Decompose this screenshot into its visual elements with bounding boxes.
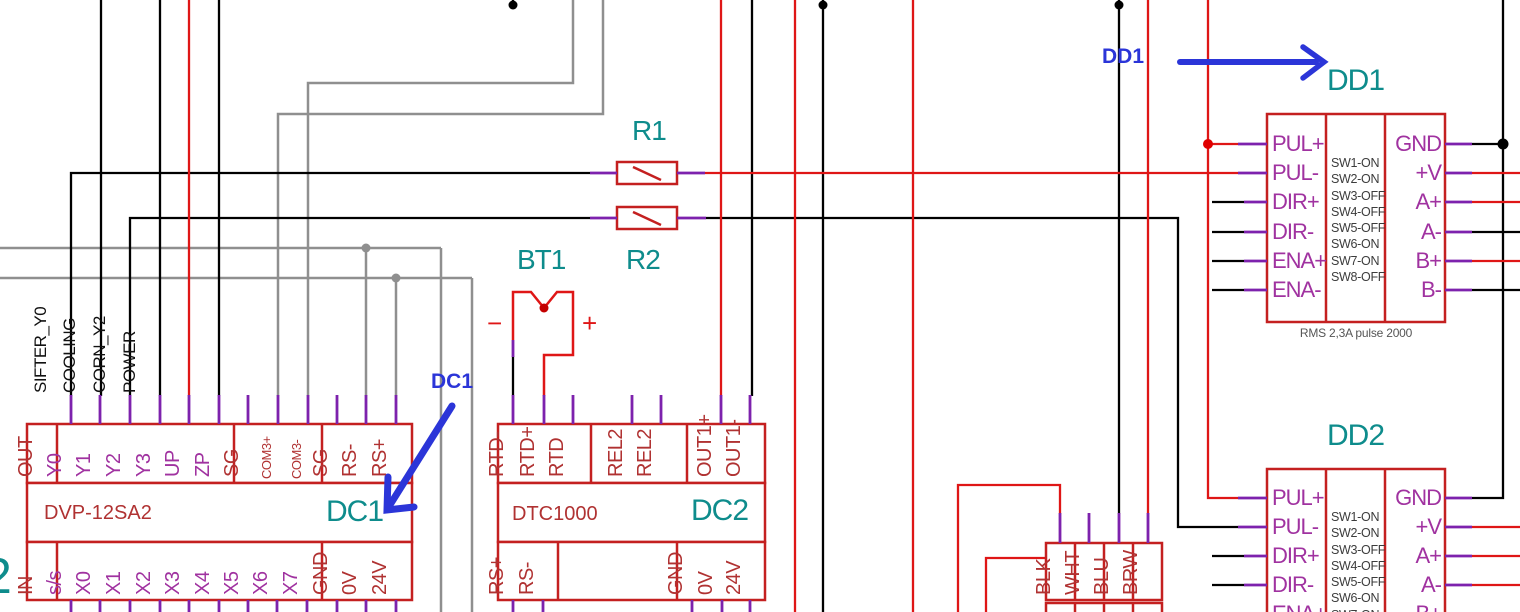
dc2-pin-gnd: GND: [668, 552, 684, 595]
dd1-pin-pulm: PUL-: [1272, 160, 1324, 186]
dd2-pin-pulm: PUL-: [1272, 514, 1324, 540]
schematic-canvas: SIFTER_Y0 COOLING CORN_Y2 POWER OUT Y0 Y…: [0, 0, 1520, 612]
dc1-pin-sg1: SG: [224, 449, 240, 477]
dc1-pin-y3: Y3: [136, 454, 152, 477]
dc1-part-number: DVP-12SA2: [44, 502, 152, 524]
dd1-pin-am: A-: [1386, 219, 1441, 245]
battery-minus-sign: −: [487, 310, 502, 336]
dc1-pin-y2: Y2: [106, 454, 122, 477]
dc1-pin-up: UP: [165, 450, 181, 477]
dd1-sw6: SW6-ON: [1331, 236, 1385, 252]
component-boxes: [27, 114, 1445, 612]
dd2-sw7: SW7-ON: [1331, 607, 1385, 612]
resistor-r2: [617, 207, 677, 229]
connector-pin-brw: BRW: [1123, 550, 1139, 595]
dd2-sw1: SW1-ON: [1331, 509, 1385, 525]
dc1-pin-24v: 24V: [372, 561, 388, 595]
dd2-pin-am: A-: [1386, 572, 1441, 598]
r1-reference: R1: [632, 116, 666, 146]
dc2-pin-rtdm: RTD-: [489, 432, 505, 477]
dc1-pin-x4: X4: [195, 572, 211, 595]
dd2-pin-v: +V: [1386, 514, 1441, 540]
dd1-pin-bm: B-: [1386, 277, 1441, 303]
dd1-sw3: SW3-OFF: [1331, 188, 1385, 204]
dd1-sw2: SW2-ON: [1331, 171, 1385, 187]
dc1-pin-gnd: GND: [313, 552, 329, 595]
dd2-pin-enap: ENA+: [1272, 601, 1324, 612]
dc1-pin-rsm: RS-: [342, 444, 358, 477]
dd1-pin-pulp: PUL+: [1272, 131, 1324, 157]
bt1-reference: BT1: [517, 245, 565, 275]
dd2-pin-dirp: DIR+: [1272, 543, 1324, 569]
dd1-pin-dirp: DIR+: [1272, 189, 1324, 215]
dc1-pin-com3m: COM3-: [291, 440, 302, 479]
wire-label-power: POWER: [122, 331, 138, 393]
dd1-sw4: SW4-OFF: [1331, 204, 1385, 220]
dc1-pin-rsp: RS+: [372, 439, 388, 477]
battery-symbol: [513, 292, 573, 396]
dd2-pin-bp: B+: [1386, 601, 1441, 612]
connector-pin-wht: WHT: [1065, 551, 1081, 595]
dc1-pin-out: OUT: [18, 436, 34, 477]
dc1-pin-ss: s/s: [47, 571, 63, 595]
connector-pin-blu: BLU: [1094, 558, 1110, 595]
dd1-pin-ap: A+: [1386, 189, 1441, 215]
dd1-arrow: [1180, 47, 1324, 78]
dd2-sw4: SW4-OFF: [1331, 558, 1385, 574]
dd1-pin-bp: B+: [1386, 248, 1441, 274]
dc2-pin-rsm: RS-: [519, 562, 535, 595]
dc2-pin-rel2b: REL2: [637, 429, 653, 477]
dc2-pin-0v: 0V: [698, 572, 714, 595]
dd2-pin-pulp: PUL+: [1272, 485, 1324, 511]
dc1-pin-y0: Y0: [47, 454, 63, 477]
dd1-sw5: SW5-OFF: [1331, 220, 1385, 236]
dc2-pin-out1p: OUT1+: [697, 414, 713, 477]
dd1-pin-v: +V: [1386, 160, 1441, 186]
dc2-pin-out1m: OUT1-: [726, 420, 742, 478]
dd2-sw2: SW2-ON: [1331, 525, 1385, 541]
dc1-pin-x6: X6: [253, 572, 269, 595]
dd1-pin-enap: ENA+: [1272, 248, 1324, 274]
dd1-pin-gnd: GND: [1386, 131, 1441, 157]
dd2-sw5: SW5-OFF: [1331, 574, 1385, 590]
dc2-pin-rtd: RTD: [549, 438, 565, 477]
dc2-pin-rsp: RS+: [489, 557, 505, 595]
dd1-pin-enam: ENA-: [1272, 277, 1324, 303]
dc1-pin-in: IN: [18, 576, 34, 595]
annotation-dd1-label: DD1: [1102, 46, 1144, 68]
dc1-pin-sg2: SG: [313, 449, 329, 477]
dd1-sw8: SW8-OFF: [1331, 269, 1385, 285]
dc1-pin-com3p: COM3+: [261, 436, 272, 479]
dd2-pin-ap: A+: [1386, 543, 1441, 569]
dd1-sw1: SW1-ON: [1331, 155, 1385, 171]
connector-pin-blk: BLK: [1036, 559, 1052, 595]
dd2-pin-gnd: GND: [1386, 485, 1441, 511]
dd1-sw7: SW7-ON: [1331, 253, 1385, 269]
dc1-pin-x5: X5: [224, 572, 240, 595]
annotation-dc1-label: DC1: [431, 371, 473, 393]
dc2-pin-rel2a: REL2: [608, 429, 624, 477]
battery-plus-sign: +: [582, 310, 597, 336]
dc1-pin-x3: X3: [165, 572, 181, 595]
r2-reference: R2: [626, 245, 660, 275]
dc1-pin-x1: X1: [106, 572, 122, 595]
dc1-pin-0v: 0V: [342, 572, 358, 595]
wire-label-sifter-y0: SIFTER_Y0: [33, 307, 49, 393]
dd1-switch-settings: SW1-ON SW2-ON SW3-OFF SW4-OFF SW5-OFF SW…: [1331, 155, 1385, 285]
wire-label-corn-y2: CORN_Y2: [92, 316, 108, 393]
dd2-reference: DD2: [1327, 421, 1384, 451]
dd2-switch-settings: SW1-ON SW2-ON SW3-OFF SW4-OFF SW5-OFF SW…: [1331, 509, 1385, 612]
dd2-sw6: SW6-ON: [1331, 590, 1385, 606]
dd1-pin-dirm: DIR-: [1272, 219, 1324, 245]
dc1-reference: DC1: [326, 497, 383, 527]
dc2-pin-24v: 24V: [726, 561, 742, 595]
dc1-pin-y1: Y1: [76, 454, 92, 477]
edge-clipped-label: 2: [0, 551, 12, 601]
resistor-r1: [617, 162, 677, 184]
dd1-reference: DD1: [1327, 66, 1384, 96]
dc1-pin-x0: X0: [76, 572, 92, 595]
dd2-pin-dirm: DIR-: [1272, 572, 1324, 598]
dc1-pin-zp: ZP: [195, 452, 211, 477]
dc2-reference: DC2: [691, 496, 748, 526]
dc1-pin-x7: X7: [283, 572, 299, 595]
dd1-rating-note: RMS 2,3A pulse 2000: [1267, 326, 1445, 340]
dd2-sw3: SW3-OFF: [1331, 542, 1385, 558]
dc2-part-number: DTC1000: [512, 503, 598, 525]
dc1-pin-x2: X2: [136, 572, 152, 595]
dc2-pin-rtdp: RTD+: [520, 427, 536, 477]
wire-label-cooling: COOLING: [62, 318, 78, 393]
